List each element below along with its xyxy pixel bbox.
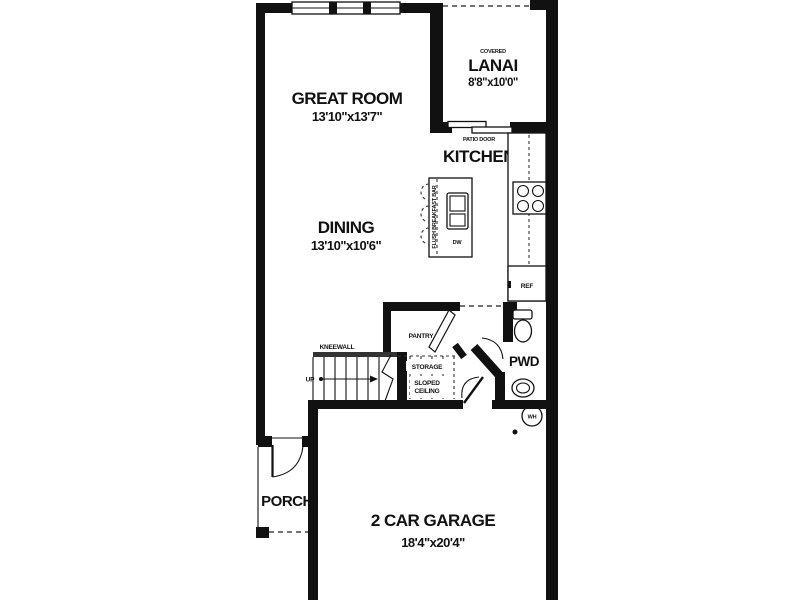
great-room: GREAT ROOM 13'10"x13'7" [292,89,403,124]
floor-plan-canvas: COVERED LANAI 8'8"x10'0" PATIO DOOR GREA… [0,0,800,600]
pantry-door-leaf [429,310,455,352]
pantry-top-wall [383,302,460,311]
garage-label: 2 CAR GARAGE [371,511,496,530]
kitchen-label: KITCHEN [443,147,515,166]
garage-entry-door [462,377,483,403]
kitchen-island: FLUSH BREAKFAST BAR DW [421,178,472,257]
front-door-swing [273,446,304,477]
pwd-left-wall-lower [495,372,505,402]
pwd-diagonal-wall [474,347,500,376]
toilet-tank [513,310,532,319]
stairs-right-wall [397,352,407,402]
top-wall-left-segment [256,3,296,13]
garage: 2 CAR GARAGE 18'4"x20'4" [371,511,496,550]
sloped-label: SLOPED [414,380,440,387]
arrow-head [370,376,378,383]
pantry-label: PANTRY [409,333,435,340]
floor-plan-drawing: COVERED LANAI 8'8"x10'0" PATIO DOOR GREA… [0,0,800,600]
left-wall [256,3,265,445]
patio-door-label: PATIO DOOR [463,137,495,143]
pwd-left-wall-upper [503,308,513,342]
staircase: KNEEWALL UP [306,344,397,401]
powder-sink [512,379,534,397]
pantry: PANTRY [409,310,455,352]
great-room-label: GREAT ROOM [292,89,403,108]
toilet-bowl [515,320,532,342]
pantry-left-wall [383,302,391,354]
porch-top-left-post [258,436,272,447]
storage-label: STORAGE [412,364,443,371]
sink-bowl-inner [517,383,530,393]
lanai-label: LANAI [468,56,517,75]
up-direction-arrow: UP [306,376,378,384]
lanai: COVERED LANAI 8'8"x10'0" [443,6,530,89]
sink-bowl-outer [512,379,534,397]
breakfast-bar-label: FLUSH BREAKFAST BAR [432,185,438,248]
pantry-door-stub [455,345,464,357]
dining-dims: 13'10"x10'6" [311,238,382,253]
under-lanai-wall-right [510,122,546,133]
refrigerator: REF [508,266,546,301]
bar-stool-3 [421,228,429,244]
ceiling-label: CEILING [415,388,440,395]
patio-door: PATIO DOOR [448,122,512,144]
kitchen: KITCHEN REF FLUSH BREAKFAST BAR [421,133,546,301]
powder-label: PWD [509,354,540,369]
great-room-window [292,2,400,14]
bar-stool-1 [421,184,429,200]
refrigerator-label: REF [521,283,534,290]
water-heater-label: WH [528,415,537,421]
refrigerator-handle [508,281,511,288]
kneewall-label: KNEEWALL [320,344,355,351]
bar-stool-2 [421,206,429,222]
great-room-dims: 13'10"x13'7" [312,109,383,124]
stove [513,182,546,214]
patio-door-panel-inner [472,127,512,133]
dishwasher-label: DW [453,240,463,246]
kneewall-bar [313,352,397,357]
dining-room: DINING 13'10"x10'6" [311,218,382,253]
porch-bottom-post [256,527,269,538]
island-sink [447,193,468,229]
lanai-left-wall [430,3,443,133]
porch-label: PORCH [261,493,313,510]
right-wall [546,0,558,600]
window-mullion-2 [363,2,371,14]
porch-top-right-post [302,436,318,447]
window-mullion-1 [329,2,337,14]
lanai-dims: 8'8"x10'0" [468,77,518,89]
stair-break-line [382,355,393,401]
lanai-covered-label: COVERED [480,49,506,55]
garage-dims: 18'4"x20'4" [401,535,465,550]
toilet [513,310,532,342]
front-door [273,445,304,477]
dining-label: DINING [318,218,375,237]
garage-top-wall-left [308,400,463,409]
up-label: UP [306,377,315,384]
floor-drain [513,430,518,435]
